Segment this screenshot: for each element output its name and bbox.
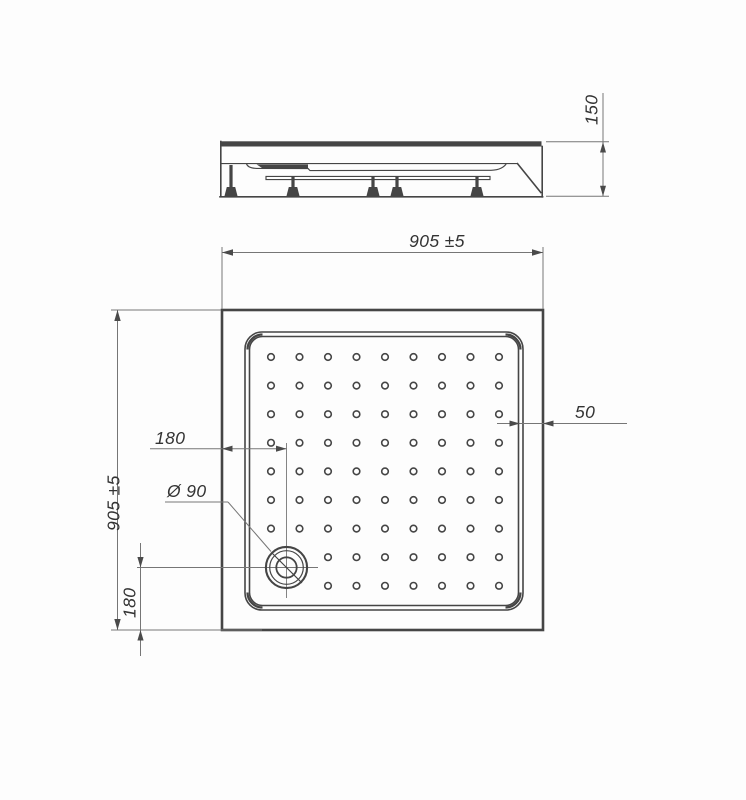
arrowhead-up	[600, 142, 606, 153]
anti-slip-dot	[382, 497, 389, 504]
foot-stem	[475, 176, 478, 187]
anti-slip-dot	[439, 583, 446, 590]
anti-slip-dot	[496, 354, 503, 361]
anti-slip-dot	[439, 554, 446, 561]
anti-slip-dot	[382, 468, 389, 475]
anti-slip-dot	[296, 354, 303, 361]
anti-slip-dot	[382, 525, 389, 532]
dimension-label-drain-diameter: Ø 90	[166, 481, 207, 501]
anti-slip-dot	[353, 497, 360, 504]
anti-slip-dot	[467, 554, 474, 561]
anti-slip-dot	[268, 440, 275, 447]
side-support-rail	[266, 176, 490, 179]
anti-slip-dot	[296, 411, 303, 418]
anti-slip-dot	[410, 554, 417, 561]
arrowhead-up	[137, 630, 143, 641]
anti-slip-dot	[467, 411, 474, 418]
foot-base	[390, 187, 403, 196]
anti-slip-dot	[268, 525, 275, 532]
anti-slip-dot	[296, 497, 303, 504]
arrowhead-up	[114, 310, 120, 321]
anti-slip-dot	[467, 354, 474, 361]
side-elevation-view	[220, 141, 543, 197]
anti-slip-dot	[467, 583, 474, 590]
foot-stem	[291, 176, 294, 187]
anti-slip-dot	[325, 525, 332, 532]
anti-slip-dot	[496, 411, 503, 418]
dimension-label-drain-x: 180	[155, 428, 185, 448]
foot-base	[366, 187, 379, 196]
dimension-drain-offset-x-180: 180	[150, 428, 287, 452]
anti-slip-dot	[325, 497, 332, 504]
anti-slip-dot	[496, 583, 503, 590]
anti-slip-dot	[296, 440, 303, 447]
anti-slip-dot	[353, 440, 360, 447]
anti-slip-dot	[410, 525, 417, 532]
foot-base	[470, 187, 483, 196]
arrowhead-down	[137, 557, 143, 568]
anti-slip-dot	[467, 382, 474, 389]
anti-slip-dot	[353, 354, 360, 361]
arrowhead-right	[532, 249, 543, 255]
anti-slip-dot	[353, 583, 360, 590]
anti-slip-dot	[353, 411, 360, 418]
anti-slip-dot	[325, 468, 332, 475]
foot-base	[224, 187, 237, 196]
anti-slip-dot	[496, 468, 503, 475]
anti-slip-dot	[410, 468, 417, 475]
anti-slip-dot	[296, 525, 303, 532]
anti-slip-dot	[382, 382, 389, 389]
anti-slip-dot	[410, 382, 417, 389]
anti-slip-dot	[325, 554, 332, 561]
anti-slip-dot	[296, 468, 303, 475]
anti-slip-dot	[268, 382, 275, 389]
anti-slip-dot	[353, 525, 360, 532]
anti-slip-dot	[496, 382, 503, 389]
anti-slip-dot	[439, 440, 446, 447]
anti-slip-dot	[382, 440, 389, 447]
foot-stem	[371, 176, 374, 187]
arrowhead-down	[600, 186, 606, 197]
anti-slip-dot	[325, 382, 332, 389]
arrowhead-left	[543, 421, 554, 427]
dimension-depth-905: 905 ±5	[104, 310, 263, 630]
anti-slip-dot	[296, 382, 303, 389]
foot-stem	[395, 176, 398, 187]
anti-slip-dot	[439, 497, 446, 504]
dimension-label-width: 905 ±5	[409, 231, 465, 251]
side-drain-seat	[257, 164, 309, 168]
anti-slip-dot	[467, 468, 474, 475]
dimension-label-drain-y: 180	[120, 588, 140, 618]
anti-slip-dot	[439, 525, 446, 532]
dimension-label-depth: 905 ±5	[104, 475, 124, 531]
anti-slip-dot	[467, 440, 474, 447]
dimension-rim-50: 50	[497, 402, 627, 427]
anti-slip-dot	[325, 354, 332, 361]
anti-slip-dot	[439, 411, 446, 418]
dimension-label-rim: 50	[575, 402, 595, 422]
anti-slip-dot	[268, 411, 275, 418]
anti-slip-dot	[353, 382, 360, 389]
anti-slip-dot	[382, 411, 389, 418]
arrowhead-down	[114, 619, 120, 630]
dimension-height-150: 150	[546, 93, 609, 196]
anti-slip-dot	[353, 468, 360, 475]
shower-tray-technical-drawing: 150 905 ±5	[0, 0, 746, 800]
foot-base	[286, 187, 299, 196]
anti-slip-dot	[467, 497, 474, 504]
arrowhead-left	[222, 446, 233, 452]
anti-slip-dot	[496, 497, 503, 504]
foot-stem	[229, 165, 232, 187]
anti-slip-dot	[410, 583, 417, 590]
side-top-rim-band	[220, 141, 542, 146]
anti-slip-dot	[325, 583, 332, 590]
anti-slip-dot	[268, 468, 275, 475]
drawing-canvas: 150 905 ±5	[0, 0, 746, 800]
anti-slip-dot	[496, 440, 503, 447]
anti-slip-dot	[467, 525, 474, 532]
anti-slip-dot	[439, 468, 446, 475]
anti-slip-dot	[325, 411, 332, 418]
anti-slip-dot	[410, 354, 417, 361]
anti-slip-dot	[439, 354, 446, 361]
anti-slip-dot	[496, 525, 503, 532]
anti-slip-dot	[496, 554, 503, 561]
anti-slip-dot	[382, 554, 389, 561]
side-adjustable-feet	[224, 165, 483, 196]
dimension-width-905: 905 ±5	[222, 231, 543, 309]
dimension-drain-offset-y-180: 180	[120, 543, 144, 656]
anti-slip-dot	[410, 411, 417, 418]
anti-slip-dot	[268, 354, 275, 361]
anti-slip-dot	[353, 554, 360, 561]
anti-slip-dot	[268, 497, 275, 504]
plan-view	[137, 310, 543, 630]
arrowhead-left	[222, 249, 233, 255]
side-right-chamfer	[518, 164, 541, 193]
arrowhead-right	[276, 446, 287, 452]
anti-slip-dot	[410, 497, 417, 504]
anti-slip-dot	[410, 440, 417, 447]
label-drain-diameter: Ø 90	[165, 481, 271, 552]
anti-slip-dot	[382, 583, 389, 590]
dimension-label-height: 150	[582, 95, 602, 125]
anti-slip-dot	[382, 354, 389, 361]
anti-slip-dot	[325, 440, 332, 447]
anti-slip-dot	[439, 382, 446, 389]
